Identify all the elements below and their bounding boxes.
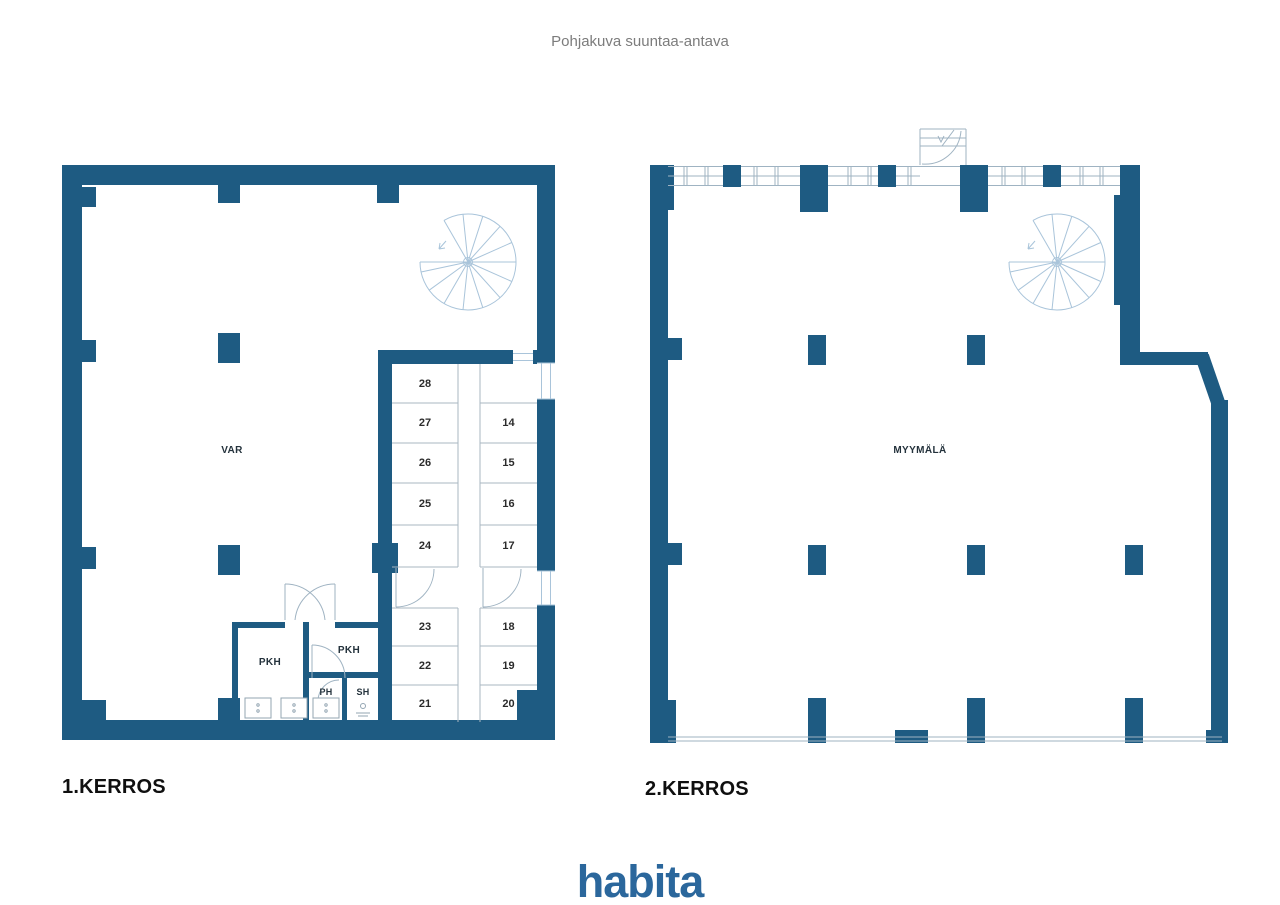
- floor1-label: 1.KERROS: [62, 776, 166, 799]
- room-label-myymala: MYYMÄLÄ: [870, 445, 970, 456]
- room-label-sh: SH: [348, 687, 378, 697]
- room-label-pkh1: PKH: [240, 657, 300, 668]
- floor1-spiral-staircase: [420, 214, 516, 310]
- page-title: Pohjakuva suuntaa-antava: [0, 33, 1280, 50]
- floor2-spiral-staircase: [1009, 214, 1105, 310]
- storage-unit-17: 17: [480, 525, 537, 567]
- room-label-var: VAR: [192, 445, 272, 456]
- floor2-window-band: [668, 165, 1120, 212]
- storage-unit-23: 23: [392, 608, 458, 646]
- room-label-ph: PH: [311, 687, 341, 697]
- storage-unit-16: 16: [480, 483, 537, 525]
- storage-unit-19: 19: [480, 646, 537, 685]
- storage-unit-28: 28: [392, 364, 458, 403]
- storage-unit-15: 15: [480, 443, 537, 483]
- floor1-plan: VAR PKH PKH PH SH 28 27 26 25 24 23 22 2…: [62, 165, 555, 740]
- floor2-plan: MYYMÄLÄ: [650, 125, 1228, 743]
- storage-unit-20: 20: [480, 685, 537, 722]
- room-label-pkh2: PKH: [319, 645, 379, 656]
- storage-unit-22: 22: [392, 646, 458, 685]
- floor1-fixtures: [245, 698, 370, 718]
- storage-unit-26: 26: [392, 443, 458, 483]
- storage-unit-27: 27: [392, 403, 458, 443]
- storage-unit-24: 24: [392, 525, 458, 567]
- storage-unit-18: 18: [480, 608, 537, 646]
- storage-unit-25: 25: [392, 483, 458, 525]
- floorplan-page: Pohjakuva suuntaa-antava: [0, 0, 1280, 905]
- floor2-label: 2.KERROS: [645, 778, 749, 801]
- storage-unit-21: 21: [392, 685, 458, 722]
- storage-unit-14: 14: [480, 403, 537, 443]
- habita-logo: habita: [0, 856, 1280, 905]
- floor2-drawing: [650, 125, 1228, 743]
- floor2-columns: [808, 335, 1143, 743]
- floor2-entrance-vestibule: [920, 129, 966, 165]
